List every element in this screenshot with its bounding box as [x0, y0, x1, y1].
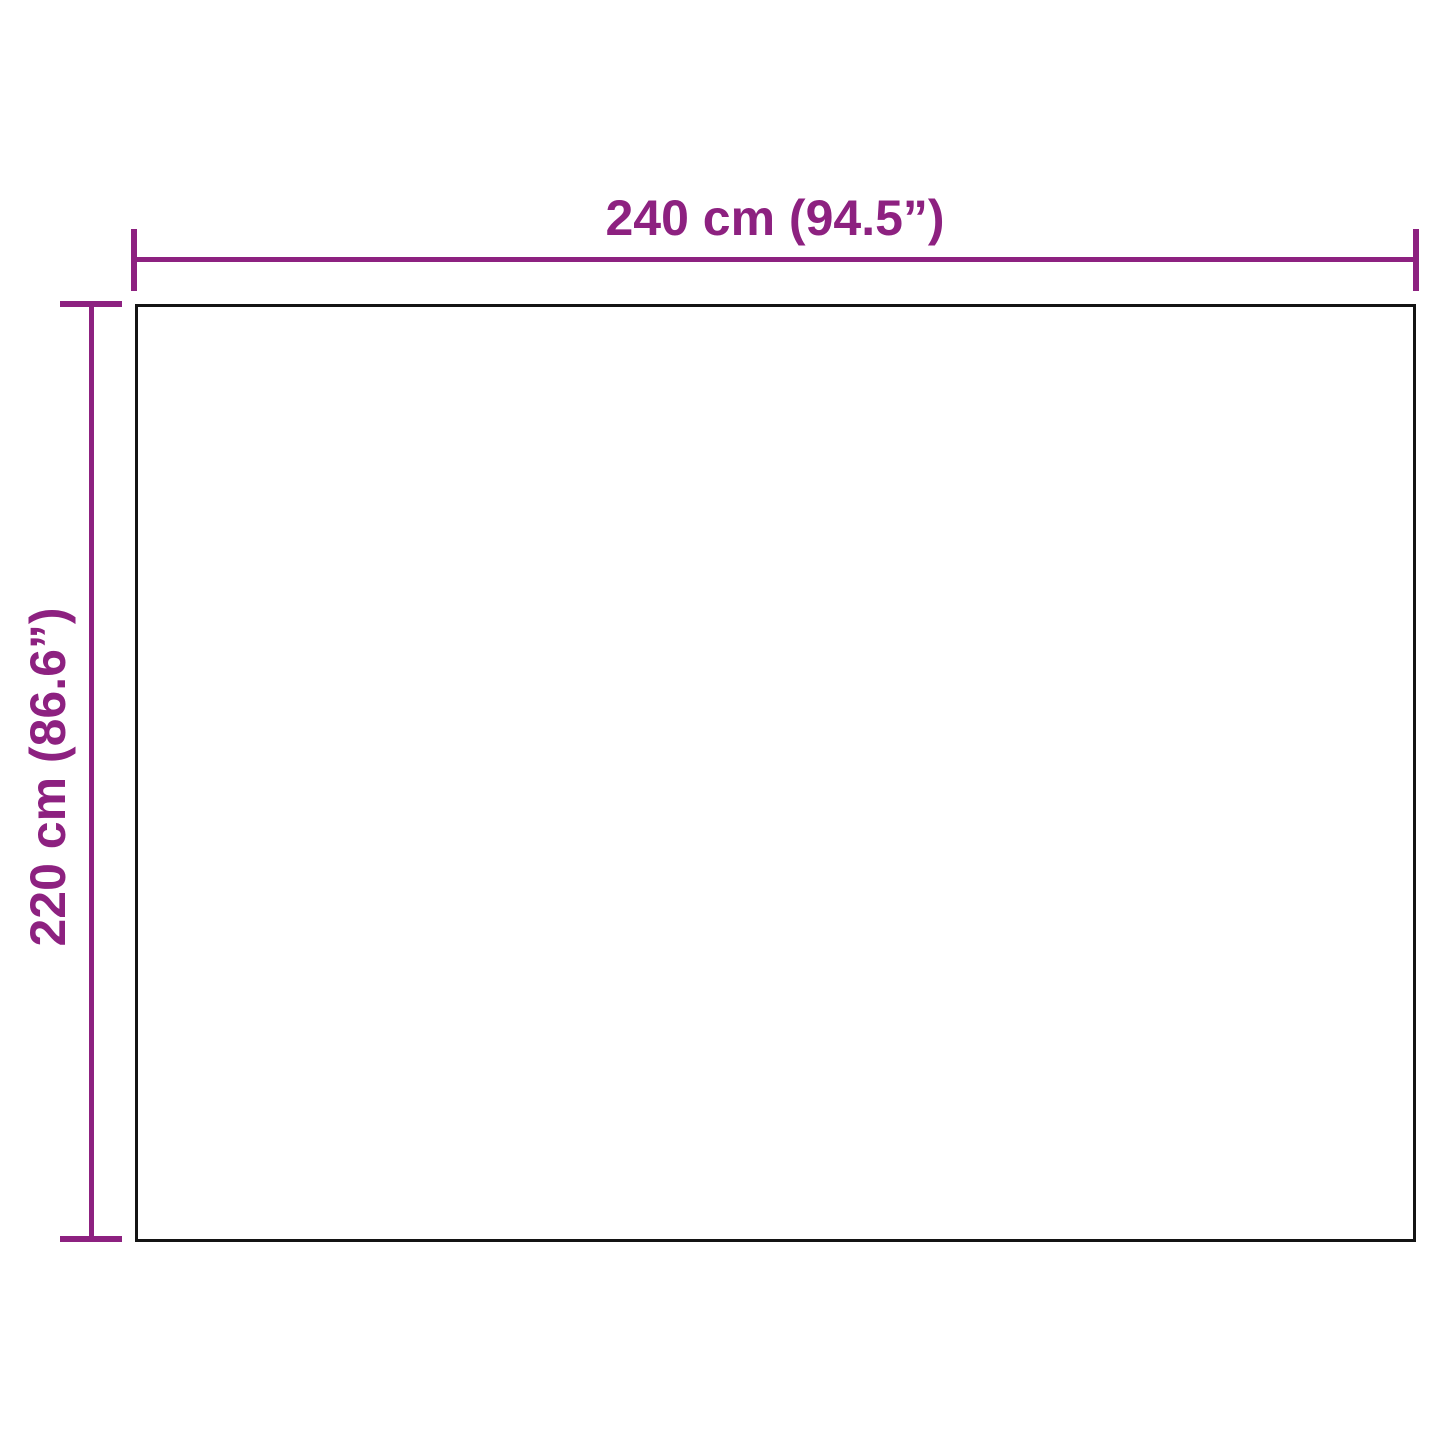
- width-dimension-cap-right: [1413, 229, 1419, 291]
- product-outline-rect: [135, 304, 1416, 1242]
- width-dimension-label: 240 cm (94.5”): [275, 188, 1275, 248]
- height-dimension-cap-bottom: [60, 1236, 122, 1242]
- width-dimension-line: [133, 257, 1417, 262]
- dimension-diagram: 240 cm (94.5”) 220 cm (86.6”): [0, 0, 1445, 1445]
- width-dimension-cap-left: [131, 229, 137, 291]
- height-dimension-line: [89, 303, 94, 1241]
- height-dimension-label: 220 cm (86.6”): [18, 427, 78, 1127]
- height-dimension-cap-top: [60, 301, 122, 307]
